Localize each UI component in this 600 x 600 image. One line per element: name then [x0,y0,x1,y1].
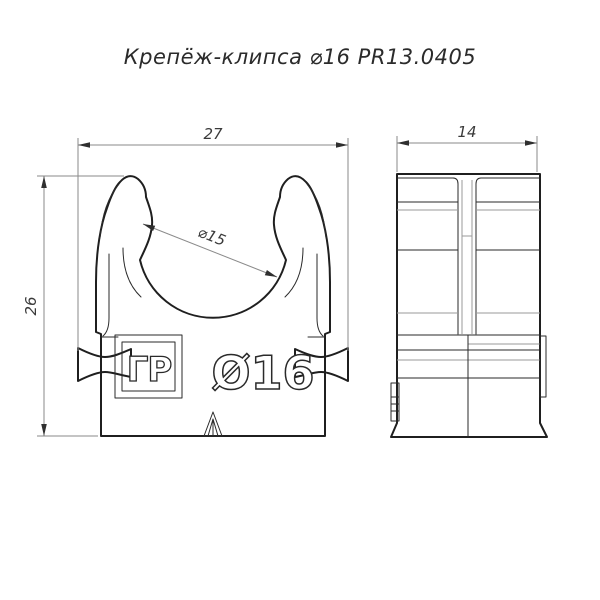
dim-diameter-arrow-b [265,270,277,277]
left-wing [78,348,131,381]
right-throat-chamfer [285,248,303,297]
front-view: ГР Ø16 [78,176,348,436]
dim-width-arrow-right [336,142,348,148]
drawing-title: Крепёж-клипса ⌀16 PR13.0405 [124,45,477,69]
dim-depth-arrow-right [525,140,537,146]
left-throat-chamfer [123,248,141,297]
dim-inner-diameter: ⌀15 [143,223,277,277]
right-prong-chamfer-line [307,184,326,238]
dim-height-arrow-top [41,176,47,188]
dim-depth-label: 14 [457,123,476,141]
channel-left-edge [453,178,458,334]
drawing-page: Крепёж-клипса ⌀16 PR13.0405 [0,0,600,600]
dim-height-extension-lines [37,176,124,436]
side-view [391,174,547,437]
dim-height-label: 26 [22,296,40,315]
logo-plate: ГР [115,335,182,398]
dim-depth-arrow-left [397,140,409,146]
stamp-diameter-text: Ø16 [211,346,314,400]
logo-text: ГР [127,350,172,390]
dim-depth: 14 [397,123,537,172]
dim-width-arrow-left [78,142,90,148]
side-outline [391,174,547,437]
technical-drawing: Крепёж-клипса ⌀16 PR13.0405 [0,0,600,600]
right-slot-edge [317,254,323,336]
left-prong-chamfer-line [100,184,119,238]
channel-inner-lines [462,180,472,334]
dim-diameter-arrow-a [143,224,155,231]
dim-depth-extension-lines [397,136,537,172]
dim-inner-diameter-label: ⌀15 [195,223,228,250]
dim-height-arrow-bottom [41,424,47,436]
gate-mark [204,412,222,436]
channel-right-edge [476,178,481,334]
dim-width-label: 27 [203,125,223,143]
left-slot-edge [103,254,109,336]
